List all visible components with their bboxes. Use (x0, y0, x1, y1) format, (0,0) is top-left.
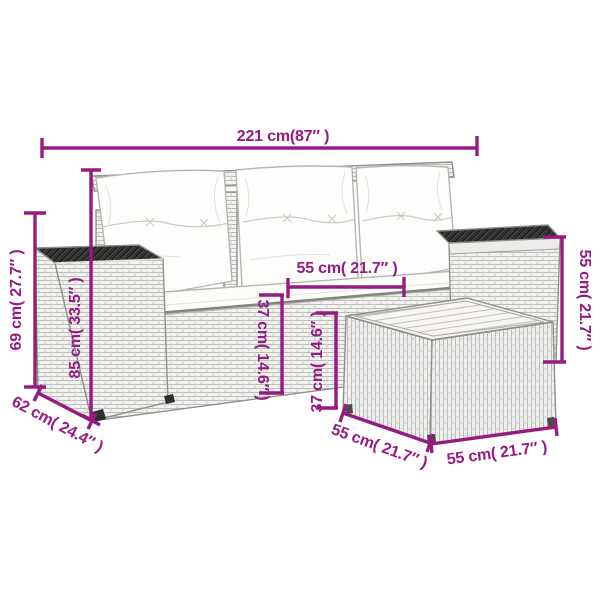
left-armrest (35, 245, 168, 421)
furniture-line-art (0, 0, 600, 600)
dim-label-table-height: 37 cm( 14.6″ ) (309, 312, 327, 413)
dim-label-overall-height: 69 cm( 27.7″ ) (8, 250, 26, 351)
dim-label-backrest-height: 85 cm( 33.5″ ) (67, 278, 85, 379)
dim-label-seat-height: 37 cm( 14.6″ ) (253, 300, 271, 401)
dim-label-overall-width: 221 cm(87″ ) (237, 128, 329, 146)
dim-label-seat-width: 55 cm( 21.7″ ) (297, 260, 398, 278)
dim-label-right-section-height: 55 cm( 21.7″ ) (575, 250, 593, 351)
side-table (343, 298, 556, 444)
dimension-diagram: 221 cm(87″ ) 69 cm( 27.7″ ) 85 cm( 33.5″… (0, 0, 600, 600)
